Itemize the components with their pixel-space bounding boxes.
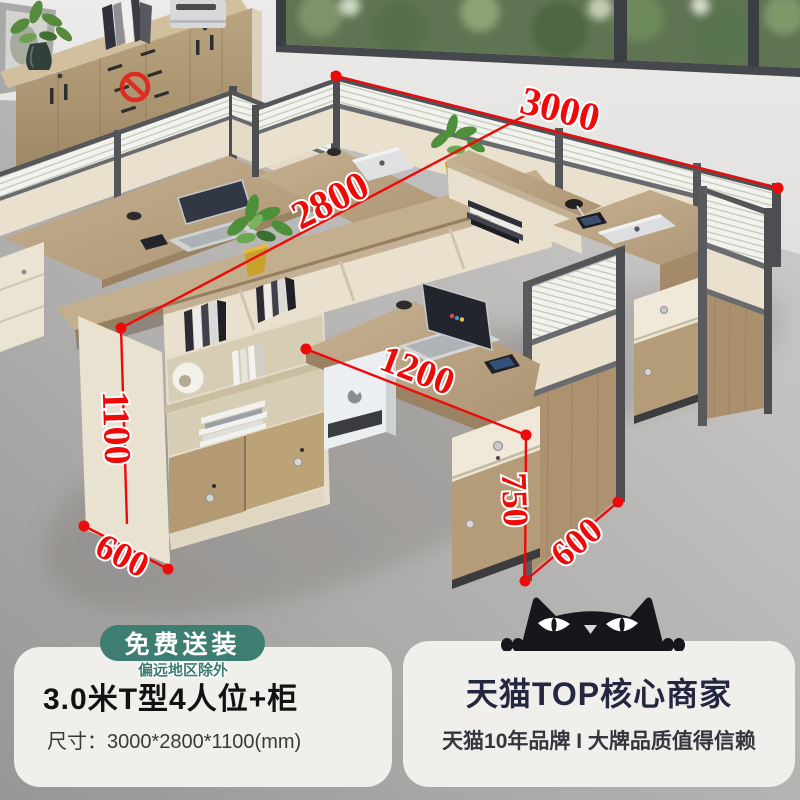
seller-info-panel: 天猫TOP核心商家 天猫10年品牌 I 大牌品质值得信赖	[403, 641, 795, 787]
tmall-cat-icon	[490, 585, 695, 651]
dim-cabinet-height: 1100	[94, 390, 139, 465]
product-title: 3.0米T型4人位+柜	[43, 674, 298, 718]
product-size-label: 尺寸：3000*2800*1100(mm)	[47, 725, 301, 754]
badge-label: 免费送装	[124, 625, 240, 661]
dim-pedestal-height: 750	[494, 472, 536, 527]
seller-title: 天猫TOP核心商家	[403, 669, 795, 715]
printer	[170, 0, 226, 28]
badge-note: 偏远地区除外	[88, 659, 278, 680]
pedestal	[0, 242, 44, 352]
end-partition	[698, 186, 772, 426]
product-image: 3000 2800 1100 600 1200 750 600 3.0米T型4人…	[0, 0, 800, 800]
donut-vase	[172, 362, 204, 394]
pedestal	[634, 278, 698, 424]
free-delivery-badge: 免费送装	[100, 625, 265, 661]
seller-subtitle: 天猫10年品牌 I 大牌品质值得信赖	[403, 725, 795, 755]
window-frame-icon	[276, 0, 286, 46]
power-grommet-icon	[565, 199, 583, 209]
